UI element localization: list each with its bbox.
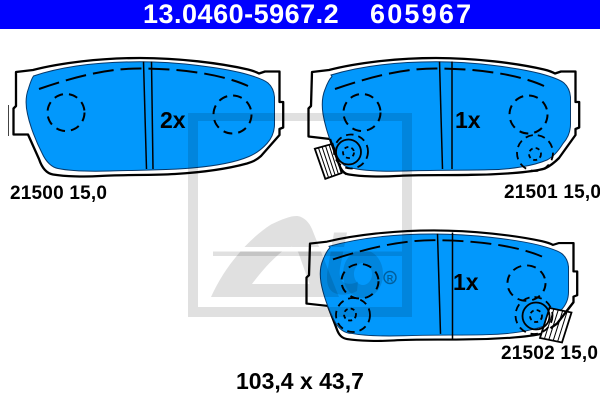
svg-text:R: R	[387, 274, 394, 284]
